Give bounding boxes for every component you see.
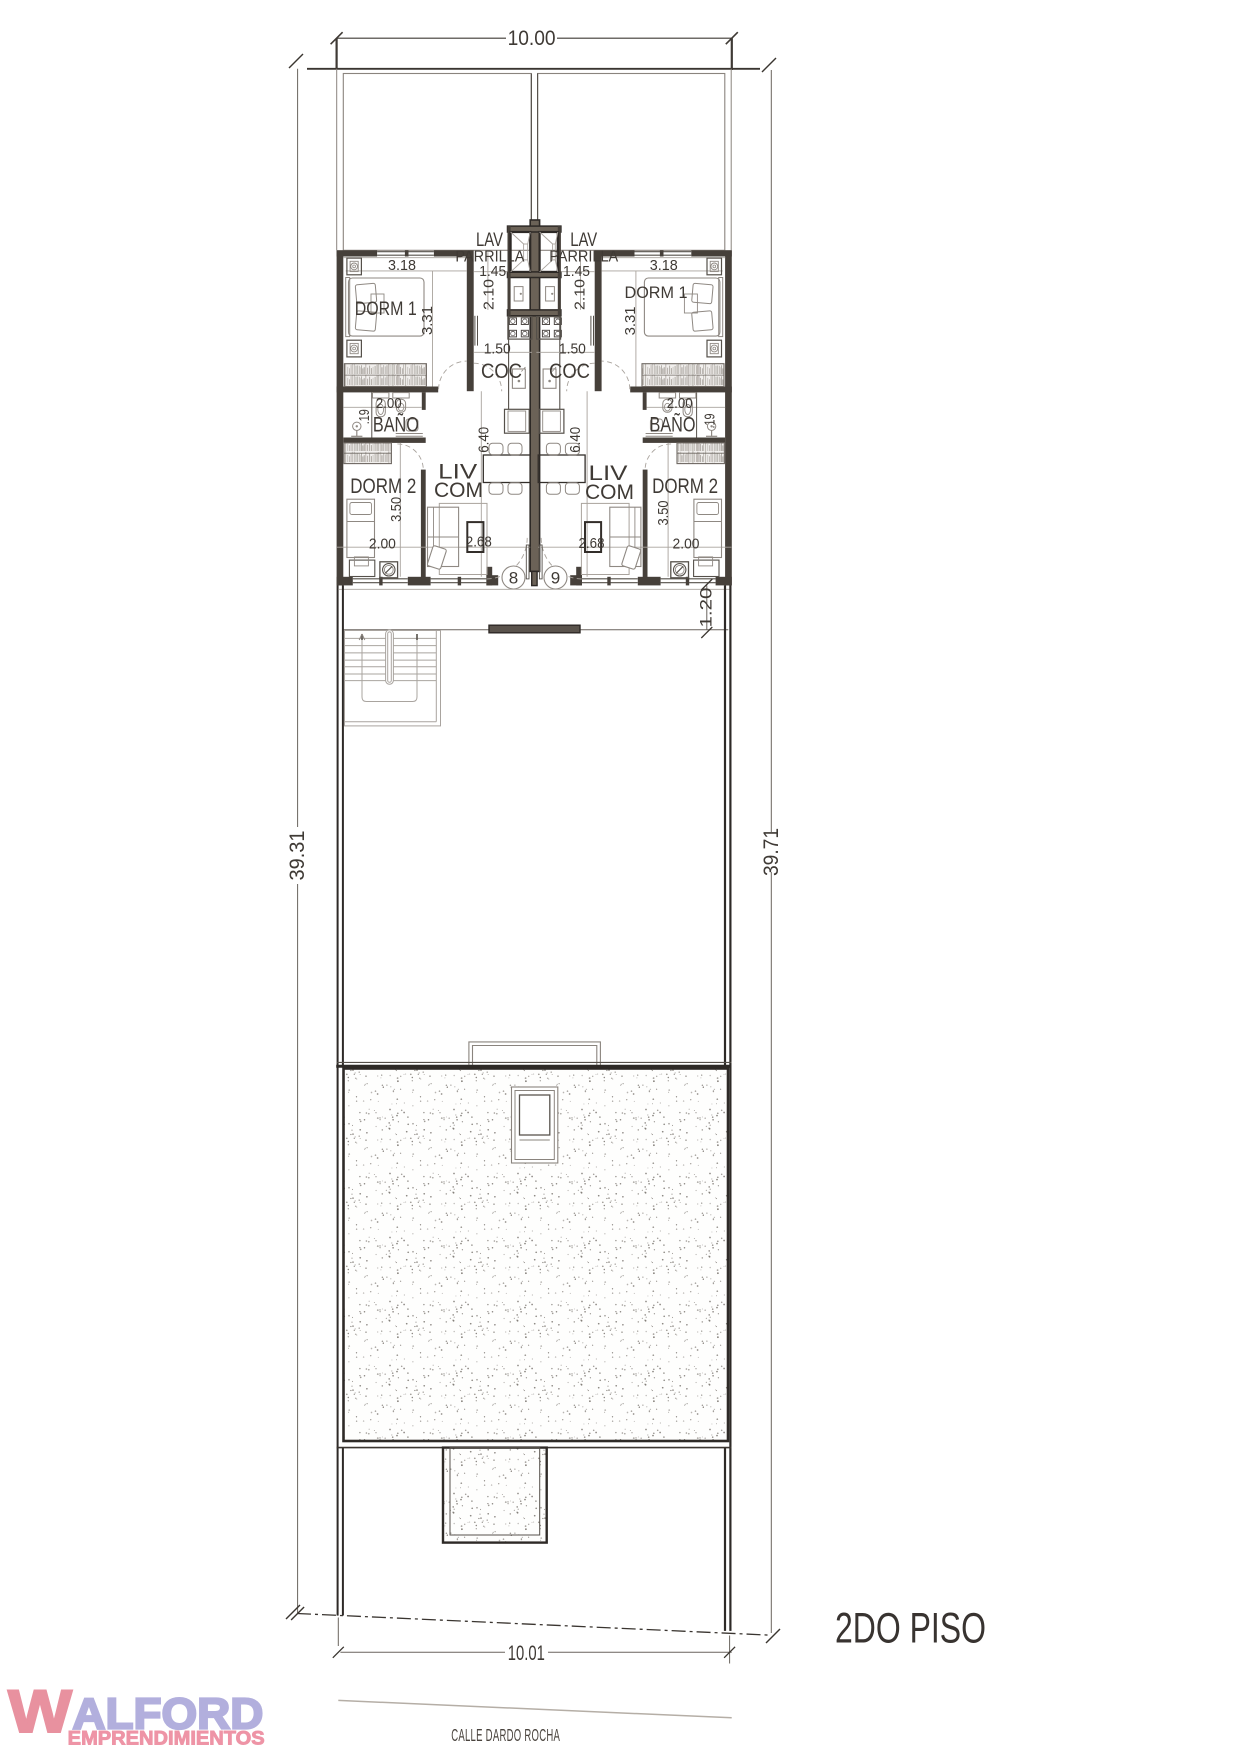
svg-text:W: W	[8, 1678, 72, 1745]
svg-text:2.00: 2.00	[376, 395, 402, 412]
svg-text:COM: COM	[434, 479, 483, 502]
svg-text:10.00: 10.00	[508, 27, 556, 50]
svg-text:2.68: 2.68	[466, 534, 492, 551]
svg-text:3.18: 3.18	[388, 257, 416, 274]
svg-text:3.50: 3.50	[655, 501, 672, 526]
svg-text:1.50: 1.50	[559, 340, 586, 357]
svg-text:3.31: 3.31	[419, 306, 436, 335]
svg-text:2.68: 2.68	[579, 535, 605, 552]
svg-text:.19: .19	[702, 414, 719, 429]
svg-text:1.50: 1.50	[484, 340, 511, 357]
svg-text:2.00: 2.00	[673, 536, 700, 553]
svg-text:1.45: 1.45	[479, 263, 506, 280]
svg-text:6.40: 6.40	[476, 427, 493, 453]
svg-text:2.00: 2.00	[667, 395, 693, 412]
svg-text:2.10: 2.10	[572, 279, 589, 310]
svg-text:2DO PISO: 2DO PISO	[835, 1605, 986, 1653]
svg-text:DORM 1: DORM 1	[355, 299, 417, 320]
svg-text:10.01: 10.01	[508, 1642, 545, 1665]
svg-text:EMPRENDIMIENTOS: EMPRENDIMIENTOS	[68, 1729, 265, 1750]
svg-text:9: 9	[551, 569, 560, 588]
svg-text:39.71: 39.71	[760, 828, 783, 876]
svg-text:2.10: 2.10	[481, 279, 498, 310]
svg-text:CALLE DARDO ROCHA: CALLE DARDO ROCHA	[451, 1725, 560, 1745]
svg-text:8: 8	[509, 569, 518, 588]
svg-text:DORM 2: DORM 2	[652, 475, 718, 498]
svg-text:3.18: 3.18	[650, 257, 678, 274]
svg-text:39.31: 39.31	[286, 831, 309, 881]
svg-text:BAÑO: BAÑO	[650, 412, 696, 436]
svg-text:1.45: 1.45	[563, 263, 590, 280]
svg-text:BAÑO: BAÑO	[373, 412, 419, 436]
svg-text:3.50: 3.50	[388, 497, 405, 522]
svg-text:DORM 2: DORM 2	[350, 475, 416, 498]
svg-text:2.00: 2.00	[369, 536, 396, 553]
svg-text:COC: COC	[481, 360, 522, 383]
svg-text:DORM 1: DORM 1	[625, 284, 688, 302]
svg-text:COC: COC	[549, 360, 590, 383]
svg-text:.19: .19	[356, 409, 373, 424]
svg-text:6.40: 6.40	[567, 427, 584, 453]
svg-text:1.20: 1.20	[696, 588, 715, 628]
svg-text:3.31: 3.31	[622, 306, 639, 335]
svg-text:COM: COM	[585, 481, 634, 504]
